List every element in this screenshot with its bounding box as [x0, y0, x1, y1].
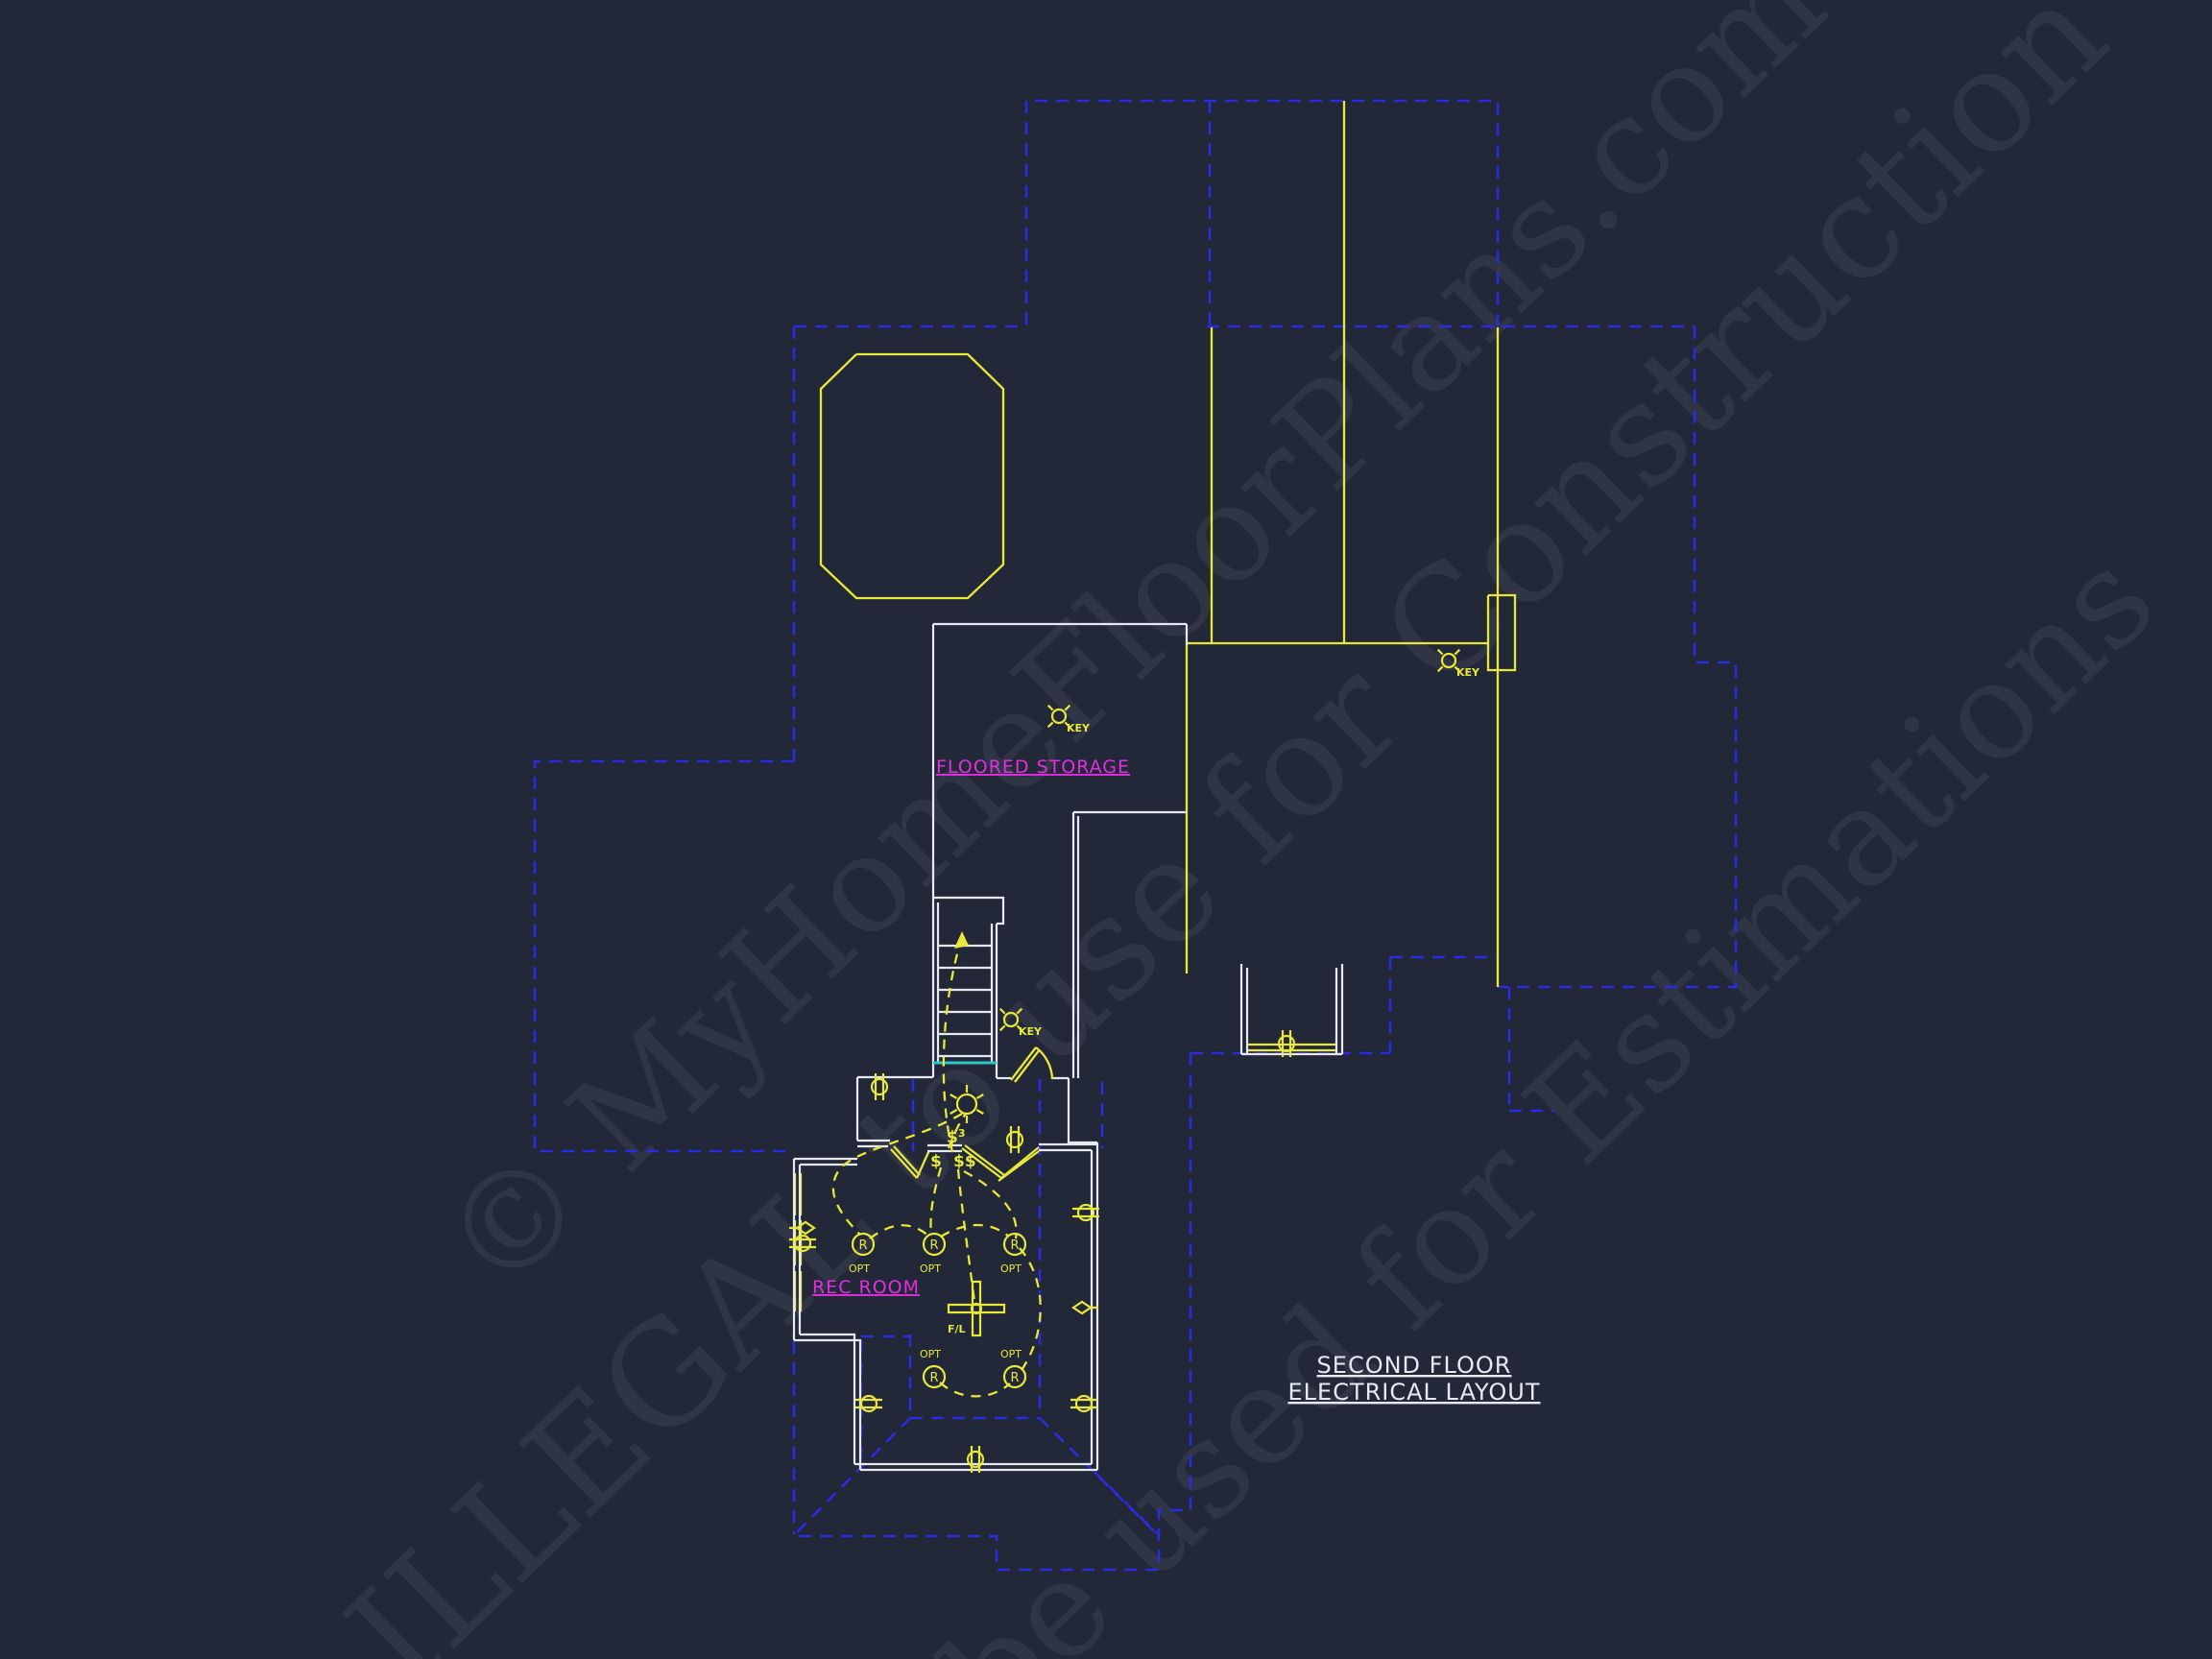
keyless-light-symbol: KEY	[1438, 650, 1480, 679]
light-ray	[1000, 1025, 1005, 1030]
roof-right-edge	[1498, 326, 1736, 987]
jack-diamond	[1073, 1302, 1091, 1313]
outlet-circle	[1076, 1396, 1092, 1411]
keyless-light-symbol: KEY	[1048, 706, 1091, 734]
recessed-light-letter: R	[929, 1238, 938, 1253]
switch-symbol: $$	[953, 1152, 976, 1171]
fan-blade-horizontal	[949, 1305, 1004, 1312]
light-ray	[1065, 706, 1070, 710]
rec-step-1	[794, 1340, 860, 1470]
leg-top-row-a	[870, 1225, 929, 1238]
key-light-label: KEY	[1456, 666, 1480, 679]
outlet-circle	[795, 1236, 810, 1251]
outlet-circle	[1007, 1132, 1022, 1147]
closet-door-1	[891, 1149, 917, 1178]
closet-door-3	[917, 1150, 929, 1178]
text-layer: FLOORED STORAGE REC ROOM SECOND FLOOR EL…	[812, 757, 1541, 1406]
hall-door-leaf-2	[1015, 1049, 1040, 1082]
ceiling-fan-symbol: F/L	[948, 1282, 1004, 1335]
leg-top-row-b	[941, 1225, 1009, 1237]
recessed-light-letter: R	[858, 1238, 867, 1253]
light-ray	[1455, 650, 1459, 655]
key-light-label: KEY	[1067, 722, 1091, 734]
light-ray	[1048, 706, 1053, 710]
light-ray	[976, 1110, 983, 1114]
light-ray	[1017, 1009, 1022, 1014]
light-ray	[1048, 722, 1053, 727]
recessed-light-symbol: ROPT	[1000, 1348, 1025, 1387]
room-label-rec-room: REC ROOM	[812, 1277, 920, 1298]
keyless-light-circle	[1004, 1013, 1018, 1026]
light-ray	[976, 1094, 983, 1098]
key-light-label: KEY	[1019, 1025, 1043, 1038]
rec-step-2	[800, 1334, 854, 1464]
recessed-light-symbol: ROPT	[849, 1234, 874, 1275]
drawing-title-line2: ELECTRICAL LAYOUT	[1288, 1379, 1541, 1406]
recessed-light-opt-label: OPT	[1000, 1262, 1022, 1275]
switch-symbol: $3	[947, 1127, 966, 1147]
switch-leg-left-sweep	[833, 1114, 962, 1235]
switch-leg-right	[964, 1171, 1017, 1238]
duplex-outlet-symbol	[1072, 1205, 1099, 1220]
duplex-outlet-symbol	[1007, 1126, 1022, 1153]
french-door-r2	[998, 1151, 1039, 1181]
recessed-light-opt-label: OPT	[1000, 1348, 1022, 1360]
light-ray	[1000, 1009, 1005, 1014]
light-ray	[950, 1110, 957, 1114]
keyless-light-circle	[1052, 709, 1066, 723]
keyless-light-circle	[1442, 654, 1455, 667]
jack-symbol	[1073, 1302, 1098, 1313]
duplex-outlet-symbol	[968, 1446, 983, 1473]
roof-top-rect	[1026, 101, 1498, 326]
drawing-title-line1: SECOND FLOOR	[1317, 1352, 1512, 1379]
recessed-light-letter: R	[1010, 1238, 1019, 1253]
leg-bottom-row	[940, 1382, 1010, 1396]
room-label-floored-storage: FLOORED STORAGE	[936, 757, 1130, 778]
light-ray	[1438, 666, 1443, 671]
hall-wall-c	[1069, 1078, 1097, 1142]
recessed-light-symbol: ROPT	[920, 1348, 945, 1387]
closet-door-2	[894, 1146, 920, 1175]
switch-sup: 3	[958, 1127, 966, 1140]
keyless-light-symbol: KEY	[1000, 1009, 1043, 1038]
hall-door-leaf-1	[1011, 1047, 1036, 1080]
electrical-symbols-layer: KEYKEYKEYROPTROPTROPTROPTROPTF/L$3$$$	[789, 650, 1480, 1473]
roof-left-rect	[535, 761, 794, 1151]
ceiling-light-circle	[957, 1094, 976, 1114]
outlet-circle	[861, 1396, 877, 1411]
chimney	[1488, 595, 1515, 670]
light-ray	[1438, 650, 1443, 655]
recessed-light-opt-label: OPT	[920, 1348, 941, 1360]
stair-direction-arrow	[954, 931, 969, 949]
switch-leg-stairs	[944, 937, 962, 1152]
recessed-light-opt-label: OPT	[849, 1262, 870, 1275]
stair-landing	[933, 898, 1003, 924]
recessed-light-letter: R	[929, 1371, 938, 1385]
fan-label: F/L	[948, 1323, 966, 1335]
recessed-light-symbol: ROPT	[1000, 1234, 1025, 1275]
roof-hip-left	[795, 1418, 910, 1534]
duplex-outlet-symbol	[1070, 1396, 1097, 1411]
recessed-light-symbol: ROPT	[920, 1234, 945, 1275]
switch-leg-center	[930, 1167, 941, 1235]
recessed-light-letter: R	[1010, 1371, 1019, 1385]
cad-lines-layer	[535, 101, 1736, 1570]
light-ray	[950, 1094, 957, 1098]
switch-symbol: $	[930, 1152, 942, 1171]
floor-plan-page: © MyHomeFloorPlans.comILLEGAL to use for…	[0, 0, 2212, 1659]
leg-right-big-arc	[1020, 1248, 1041, 1373]
outlet-circle	[872, 1079, 887, 1094]
floor-plan-canvas: KEYKEYKEYROPTROPTROPTROPTROPTF/L$3$$$ FL…	[0, 0, 2212, 1659]
octagon-open-below	[821, 354, 1003, 598]
recessed-light-opt-label: OPT	[920, 1262, 941, 1275]
